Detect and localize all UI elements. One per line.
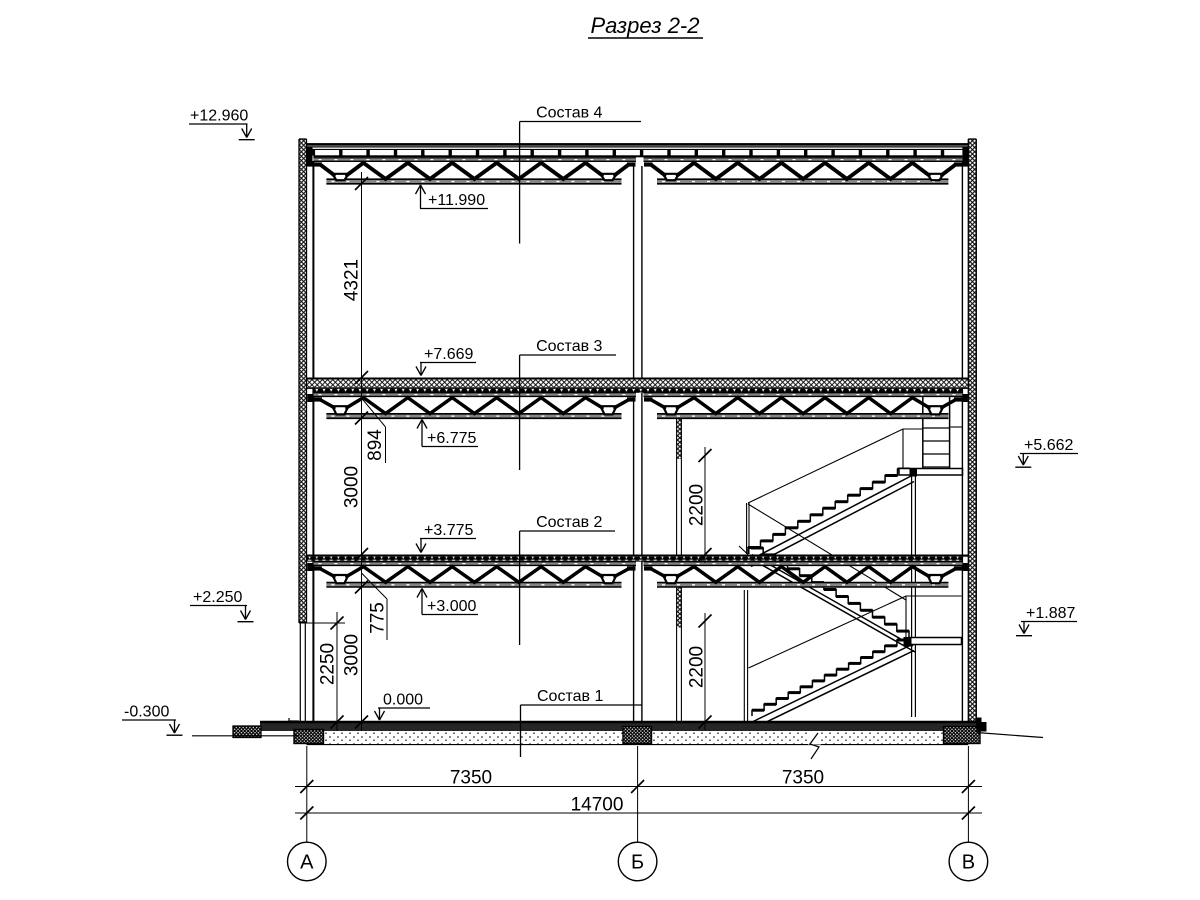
svg-text:А: А (300, 852, 314, 874)
svg-text:+1.887: +1.887 (1026, 605, 1075, 622)
svg-text:0.000: 0.000 (383, 692, 423, 709)
svg-text:775: 775 (368, 602, 389, 634)
svg-text:14700: 14700 (571, 795, 624, 816)
svg-text:3000: 3000 (342, 466, 363, 508)
svg-text:Состав 1: Состав 1 (537, 688, 603, 705)
svg-text:4321: 4321 (342, 259, 363, 301)
svg-text:2200: 2200 (687, 484, 708, 526)
svg-text:7350: 7350 (782, 768, 824, 789)
svg-text:894: 894 (365, 429, 386, 461)
svg-text:Состав 3: Состав 3 (536, 338, 602, 355)
svg-text:+11.990: +11.990 (428, 192, 485, 209)
svg-text:+3.000: +3.000 (427, 598, 476, 615)
svg-text:В: В (962, 852, 975, 874)
svg-text:+5.662: +5.662 (1024, 437, 1073, 454)
svg-text:2250: 2250 (318, 643, 339, 685)
svg-text:Разрез 2-2: Разрез 2-2 (590, 13, 699, 38)
svg-text:+7.669: +7.669 (424, 346, 473, 363)
svg-text:+12.960: +12.960 (190, 108, 248, 125)
svg-text:-0.300: -0.300 (124, 704, 169, 721)
svg-text:3000: 3000 (342, 634, 363, 676)
svg-text:Б: Б (631, 852, 644, 874)
svg-text:7350: 7350 (450, 768, 492, 789)
svg-text:2200: 2200 (687, 646, 708, 688)
svg-text:Состав 2: Состав 2 (536, 514, 602, 531)
svg-text:Состав 4: Состав 4 (536, 105, 602, 122)
svg-text:+2.250: +2.250 (193, 589, 242, 606)
svg-text:+3.775: +3.775 (424, 522, 473, 539)
svg-text:+6.775: +6.775 (427, 430, 476, 447)
